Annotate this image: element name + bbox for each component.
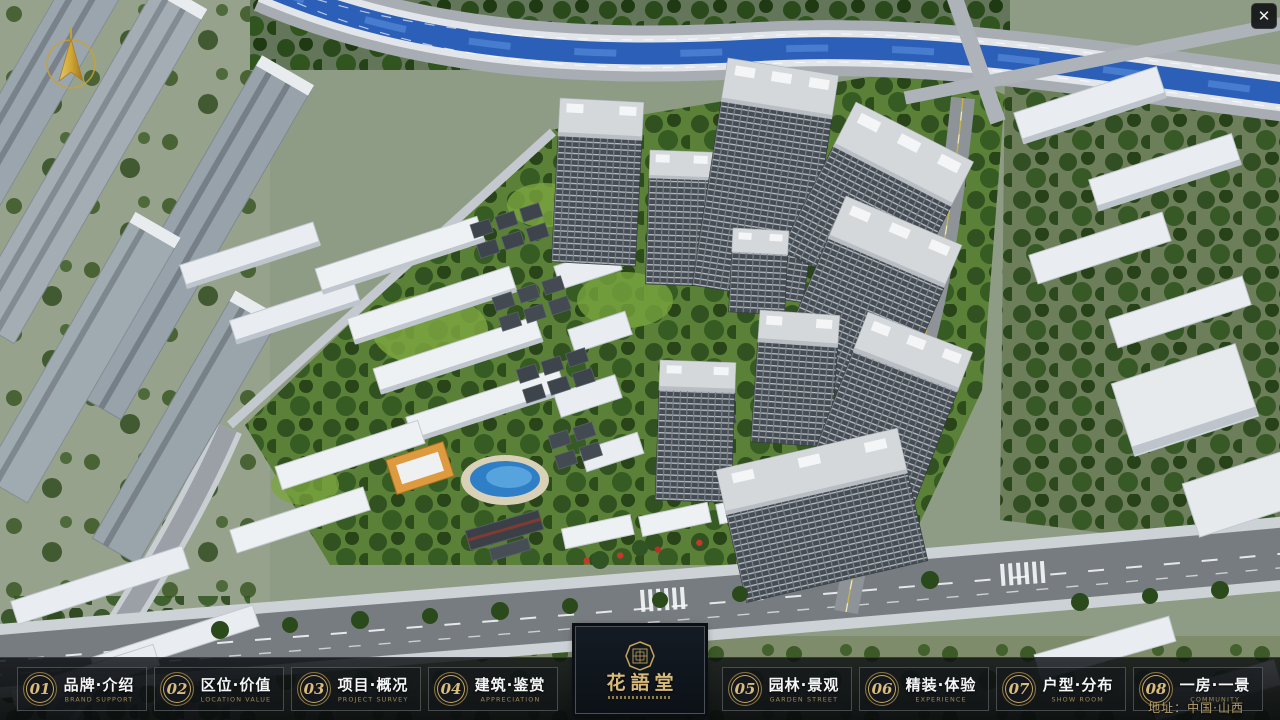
nav-item-floorplan[interactable]: 07 户型·分布 SHOW ROOM — [996, 667, 1126, 711]
nav-label: 一房·一景 — [1180, 674, 1251, 695]
nav-sublabel: GARDEN STREET — [770, 696, 839, 703]
nav-item-interior[interactable]: 06 精装·体验 EXPERIENCE — [859, 667, 989, 711]
nav-sublabel: SHOW ROOM — [1052, 696, 1104, 703]
logo-title: 花語堂 — [601, 674, 678, 693]
nav-sublabel: APPRECIATION — [480, 696, 540, 703]
nav-label: 区位·价值 — [201, 674, 272, 695]
nav-item-location[interactable]: 02 区位·价值 LOCATION VALUE — [154, 667, 284, 711]
app-window: ✕ 01 品牌·介绍 BRAND SUPPORT 02 区位·价值 LOCATI… — [0, 0, 1280, 720]
close-button[interactable]: ✕ — [1251, 3, 1277, 29]
nav-label: 精装·体验 — [906, 674, 977, 695]
nav-sublabel: BRAND SUPPORT — [65, 696, 134, 703]
bottom-navbar: 01 品牌·介绍 BRAND SUPPORT 02 区位·价值 LOCATION… — [0, 657, 1280, 720]
nav-item-project[interactable]: 03 项目·概况 PROJECT SURVEY — [291, 667, 421, 711]
compass-north-icon — [42, 26, 100, 96]
nav-label: 园林·景观 — [769, 674, 840, 695]
logo-subtext-line — [608, 696, 672, 699]
masterplan-3d-view[interactable] — [0, 0, 1280, 720]
nav-label: 建筑·鉴赏 — [475, 674, 546, 695]
nav-sublabel: PROJECT SURVEY — [338, 696, 409, 703]
project-address: 地址：中国·山西 — [1148, 699, 1244, 716]
nav-label: 品牌·介绍 — [64, 674, 135, 695]
nav-badge-02: 02 — [160, 672, 194, 706]
nav-badge-01: 01 — [23, 672, 57, 706]
nav-label: 户型·分布 — [1043, 674, 1114, 695]
nav-badge-06: 06 — [865, 672, 899, 706]
nav-item-architecture[interactable]: 04 建筑·鉴赏 APPRECIATION — [428, 667, 558, 711]
nav-badge-04: 04 — [434, 672, 468, 706]
logo-panel[interactable]: 花語堂 — [575, 626, 705, 714]
nav-sublabel: EXPERIENCE — [915, 696, 966, 703]
nav-badge-03: 03 — [297, 672, 331, 706]
nav-badge-05: 05 — [728, 672, 762, 706]
nav-item-brand[interactable]: 01 品牌·介绍 BRAND SUPPORT — [17, 667, 147, 711]
logo-seal-icon — [625, 641, 655, 671]
close-icon: ✕ — [1258, 9, 1271, 24]
nav-label: 项目·概况 — [338, 674, 409, 695]
nav-sublabel: LOCATION VALUE — [201, 696, 271, 703]
nav-item-garden[interactable]: 05 园林·景观 GARDEN STREET — [722, 667, 852, 711]
nav-badge-07: 07 — [1002, 672, 1036, 706]
